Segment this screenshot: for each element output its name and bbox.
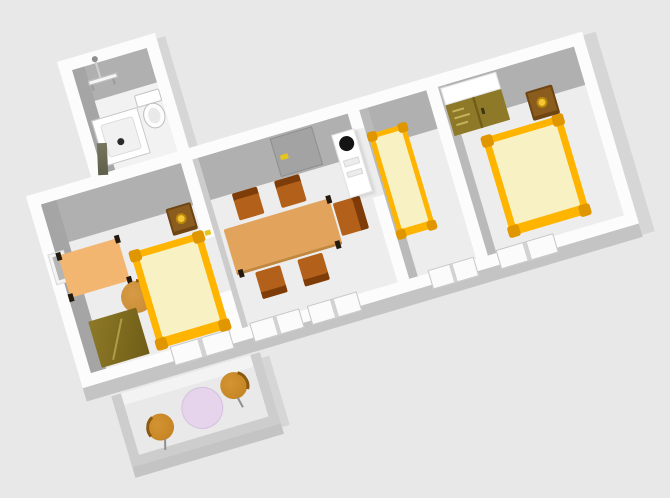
table-leg	[238, 269, 245, 278]
scene-viewport[interactable]	[0, 0, 670, 498]
entrance-door-handle	[280, 153, 289, 160]
wardrobe-right-detail	[452, 107, 464, 112]
appliance-panel-1	[343, 156, 360, 167]
appliance-top-dot	[337, 134, 356, 153]
wardrobe-left-streak	[112, 318, 122, 360]
wardrobe-right-handle	[481, 108, 486, 115]
bathroom-door-leaf[interactable]	[97, 143, 108, 175]
table-leg	[335, 240, 342, 249]
patio-chair-left-leg	[164, 439, 166, 450]
appliance-panel-2	[346, 168, 363, 178]
double-bed-left-mattress	[139, 241, 220, 338]
double-bed-right-mattress	[491, 124, 580, 225]
apartment-plan	[0, 0, 670, 498]
patio-chair-left-back	[145, 411, 176, 442]
wardrobe-right-detail	[456, 121, 468, 126]
desk-leg	[68, 293, 75, 302]
shower-drain-icon	[116, 137, 125, 146]
toilet-bowl	[146, 106, 162, 125]
wardrobe-right-detail	[454, 113, 470, 119]
